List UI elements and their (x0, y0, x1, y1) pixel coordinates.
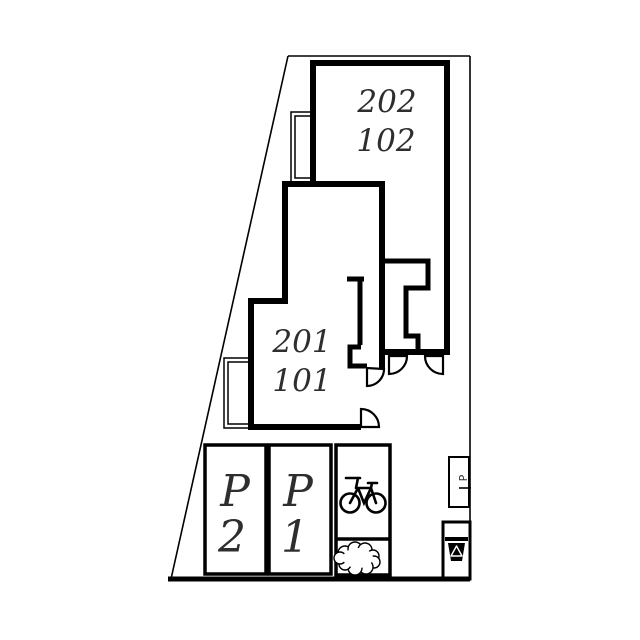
unit-upper-label-line2: 102 (356, 123, 415, 159)
door-arc-entry-right (425, 356, 443, 374)
bicycle-icon (341, 478, 386, 513)
unit-lower-label-line1: 201 (271, 324, 331, 360)
unit-upper-label-line1: 202 (356, 84, 416, 120)
site-plan-drawing: 202 102 201 101 P 2 P 1 P (0, 0, 640, 640)
balcony-lower-inner (228, 362, 251, 424)
utility-marker-label: P (457, 474, 470, 481)
parking-left-letter: P (219, 466, 251, 517)
unit-lower-label-line2: 101 (272, 363, 331, 399)
door-arc-entry-left (389, 356, 407, 374)
parking-right-number: 1 (281, 512, 309, 563)
entry-partition-foot (350, 347, 367, 366)
door-arc-porch (367, 368, 384, 386)
shrub-icon (334, 542, 380, 575)
door-arc-lower-unit (361, 409, 379, 427)
parking-left-number: 2 (217, 512, 246, 563)
balcony-lower (224, 358, 251, 428)
site-plan: 202 102 201 101 P 2 P 1 P (0, 0, 640, 640)
parking-right-letter: P (282, 466, 314, 517)
stair-core-walls (385, 261, 428, 352)
balcony-upper (291, 112, 313, 182)
recycle-bin-icon (445, 537, 468, 561)
